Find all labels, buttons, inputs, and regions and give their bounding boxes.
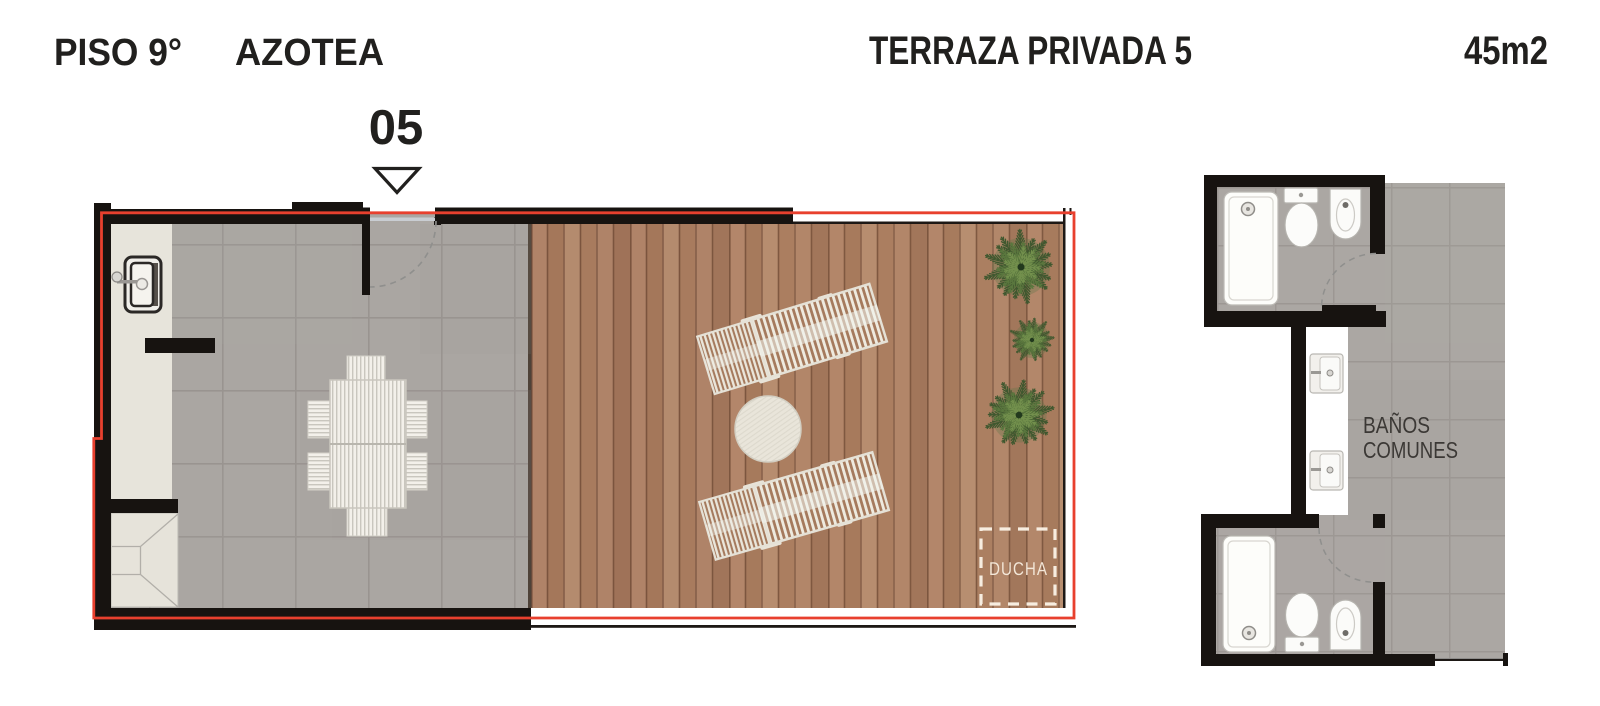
svg-text:PISO 9°: PISO 9° [54, 32, 182, 74]
svg-text:COMUNES: COMUNES [1363, 437, 1458, 463]
svg-text:AZOTEA: AZOTEA [235, 32, 384, 74]
svg-text:TERRAZA PRIVADA 5: TERRAZA PRIVADA 5 [869, 29, 1192, 73]
svg-text:05: 05 [369, 101, 424, 155]
svg-text:45m2: 45m2 [1464, 29, 1548, 73]
svg-text:BAÑOS: BAÑOS [1363, 412, 1430, 438]
